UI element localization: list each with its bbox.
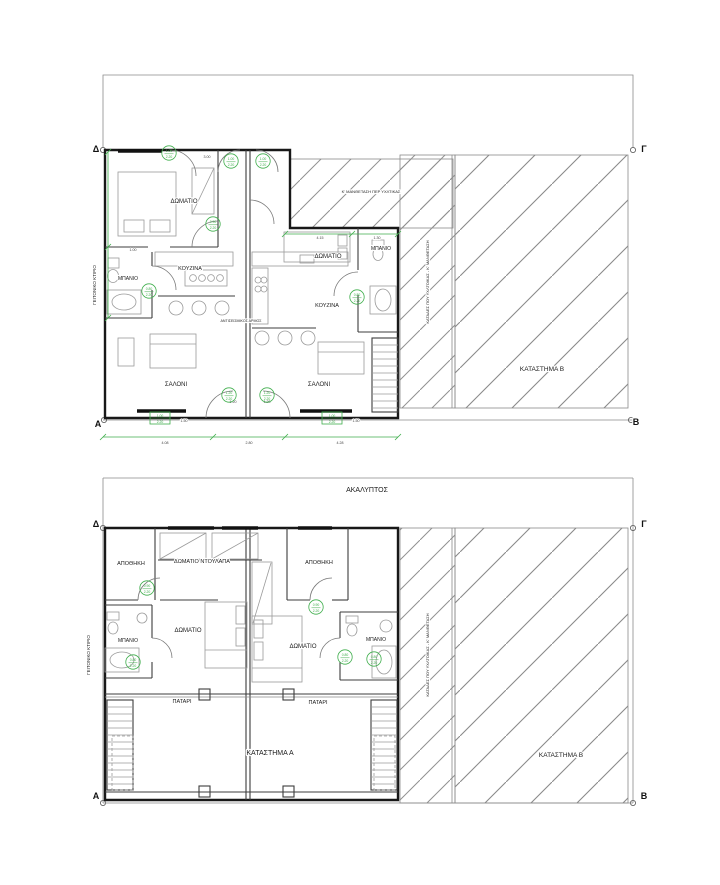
pillow: [150, 220, 170, 232]
marker-width-value: 0.90: [210, 220, 217, 224]
room-label: ΜΠΑΝΙΟ: [371, 246, 391, 252]
bed: [118, 172, 176, 236]
site-boundary-top: [103, 75, 633, 148]
annotation-note: ΓΕΙΤΟΝΙΚΟ ΚΤΙΡΙΟ: [92, 265, 97, 305]
room-label: ΣΑΛΟΝΙ: [308, 382, 331, 388]
wardrobe-diagonal: [192, 168, 214, 214]
room-label: ΔΩΜΑΤΙΟ ΝΤΟΥΛΑΠΑ: [174, 559, 230, 565]
door-swing: [152, 266, 176, 290]
corner-letter: Β: [633, 417, 640, 427]
stair-treads: [371, 707, 397, 784]
marker-width-value: 0.80: [371, 655, 378, 659]
toilet: [108, 270, 119, 283]
marker-height-value: 2.20: [228, 163, 235, 167]
dimension-box-value: 1.00: [329, 414, 336, 418]
marker-width-value: 0.80: [342, 653, 349, 657]
closet-diagonal: [160, 533, 206, 559]
bathtub: [112, 294, 136, 310]
room-label: ΠΑΤΑΡΙ: [172, 699, 192, 705]
corner-letter: Δ: [93, 519, 100, 529]
room-label: ΔΩΜΑΤΙΟ: [174, 628, 201, 634]
toilet-tank: [346, 616, 358, 623]
room-label: ΜΠΑΝΙΟ: [366, 637, 386, 643]
door-swing: [152, 638, 172, 658]
staircase: [371, 700, 397, 790]
marker-width-value: 0.80: [146, 287, 153, 291]
staircase: [107, 700, 133, 790]
door-swing: [218, 150, 240, 172]
bathtub-frame: [370, 286, 396, 314]
dimension-text: 4.28: [337, 441, 344, 445]
corner-letter: Γ: [641, 144, 647, 154]
pillow: [124, 220, 144, 232]
dimension-box-value: 2.20: [157, 420, 164, 424]
marker-height-value: 2.20: [313, 609, 320, 613]
marker-height-value: 2.20: [144, 590, 151, 594]
door-swing: [310, 578, 332, 600]
annotation-note: ΑΚΑΛΥΠΤΟΣ: [346, 487, 388, 494]
dimension-text: 1.30: [374, 236, 381, 240]
marker-height-value: 2.20: [146, 293, 153, 297]
outer-walls: [105, 528, 398, 800]
marker-width-value: 1.00: [260, 157, 267, 161]
pillow: [236, 606, 245, 624]
dimension-text: 1.00: [130, 248, 137, 252]
sofa: [318, 342, 364, 374]
room-label: ΚΑΤΑΣΤΗΜΑ Α: [246, 750, 294, 757]
room-label: ΜΠΑΝΙΟ: [118, 638, 138, 644]
marker-height-value: 2.20: [260, 163, 267, 167]
dimension-text: 2.80: [246, 441, 253, 445]
toilet: [108, 622, 118, 634]
toilet-tank: [107, 612, 119, 620]
pillow: [338, 235, 347, 246]
stool: [278, 331, 292, 345]
toilet: [347, 624, 357, 636]
bed: [205, 602, 247, 668]
stair-treads: [107, 707, 133, 784]
annotation-note: ΚΑΤΑΔΕΣ ΠΟΥ ΥΧΛΤΟΙΚΑΣ - Κ' ΜΑΝΘΕΤΑΣΗ: [425, 240, 430, 323]
corner-letter: Δ: [93, 144, 100, 154]
closet-diagonal: [212, 533, 258, 559]
marker-width-value: 1.00: [228, 157, 235, 161]
dimension-text: 4.08: [162, 441, 169, 445]
marker-height-value: 2.20: [226, 397, 233, 401]
stair-treads: [372, 345, 398, 408]
marker-height-value: 2.20: [354, 299, 361, 303]
marker-width-value: 1.00: [166, 149, 173, 153]
floor-plan-drawing: ΔΓΑΒΔΩΜΑΤΙΟΜΠΑΝΙΟΚΟΥΖΙΝΑΣΑΛΟΝΙΔΩΜΑΤΙΟΜΠΑ…: [0, 0, 720, 885]
side-table: [118, 338, 134, 366]
marker-height-value: 2.20: [342, 659, 349, 663]
annotation-note: Κ' ΜΑΝΘΕΤΑΣΗ ΠΕΡ ΥΧΛΤΙΚΑΣ: [342, 189, 401, 194]
marker-height-value: 2.20: [130, 664, 137, 668]
room-label: ΚΟΥΖΙΝΑ: [178, 266, 202, 272]
corner-letter: Β: [641, 791, 648, 801]
sink: [380, 620, 392, 632]
dimension-text: 1.50: [353, 419, 360, 423]
burner: [199, 275, 206, 282]
survey-node: [630, 147, 635, 152]
dimension-text: 4.15: [317, 236, 324, 240]
corner-letter: Α: [93, 791, 100, 801]
annotation-note: ΚΑΤΑΔΕΣ ΠΟΥ ΥΧΛΤΟΙΚΑΣ - Κ' ΜΑΝΘΕΤΑΣΗ: [425, 613, 430, 696]
corner-letter: Γ: [641, 519, 647, 529]
burner: [217, 275, 224, 282]
burner: [255, 277, 261, 283]
room-label: ΔΩΜΑΤΙΟ: [314, 254, 341, 260]
sink: [137, 613, 147, 623]
room-label: ΑΠΟΘΗΚΗ: [117, 561, 145, 567]
room-label: ΔΩΜΑΤΙΟ: [289, 644, 316, 650]
room-label: ΔΩΜΑΤΙΟ: [170, 199, 197, 205]
pillow: [236, 628, 245, 646]
room-label: ΠΑΤΑΡΙ: [308, 700, 328, 706]
dimension-text: 1.50: [181, 419, 188, 423]
sofa: [150, 334, 196, 368]
shop-b-area: [455, 528, 628, 803]
room-label: ΣΑΛΟΝΙ: [165, 382, 188, 388]
room-label: ΚΑΤΑΣΤΗΜΑ Β: [539, 752, 583, 759]
burner: [261, 277, 267, 283]
floor-plan-page: ΔΓΑΒΔΩΜΑΤΙΟΜΠΑΝΙΟΚΟΥΖΙΝΑΣΑΛΟΝΙΔΩΜΑΤΙΟΜΠΑ…: [0, 0, 720, 885]
marker-height-value: 2.20: [371, 661, 378, 665]
bathtub: [375, 289, 391, 311]
stool: [215, 301, 229, 315]
corner-letter: Α: [95, 419, 102, 429]
pillow: [254, 620, 263, 638]
stool: [169, 301, 183, 315]
door-swing: [250, 200, 274, 224]
burner: [208, 275, 215, 282]
marker-height-value: 2.20: [264, 397, 271, 401]
kitchen-counter: [252, 268, 268, 324]
room-label: ΚΟΥΖΙΝΑ: [315, 303, 339, 309]
marker-width-value: 0.90: [313, 603, 320, 607]
burner: [255, 286, 261, 292]
marker-width-value: 0.80: [354, 293, 361, 297]
annotation-note: ΓΕΙΤΟΝΙΚΟ ΚΤΙΡΙΟ: [86, 635, 91, 675]
dimension-box-value: 2.20: [329, 420, 336, 424]
wardrobe-diagonal: [253, 563, 271, 623]
room-label: ΜΠΑΝΙΟ: [118, 276, 138, 282]
room-label: ΑΠΟΘΗΚΗ: [305, 560, 333, 566]
marker-height-value: 2.20: [166, 155, 173, 159]
stove: [185, 270, 227, 286]
toilet-tank: [108, 258, 119, 268]
marker-height-value: 2.20: [210, 226, 217, 230]
stool: [192, 301, 206, 315]
annotation-note: ΑΝΤΙΣΕΙΣΜΙΚΟΣ ΑΡΜΟΣ: [221, 319, 263, 323]
burner: [190, 275, 197, 282]
stool: [301, 331, 315, 345]
stool: [255, 331, 269, 345]
room-label: ΚΑΤΑΣΤΗΜΑ Β: [520, 366, 564, 373]
marker-width-value: 1.20: [264, 391, 271, 395]
dimension-box-value: 1.00: [157, 414, 164, 418]
marker-width-value: 0.80: [130, 658, 137, 662]
door-swing: [263, 391, 290, 418]
kitchen-counter: [155, 252, 233, 266]
dimension-text: 3.00: [204, 155, 211, 159]
marker-width-value: 1.20: [226, 391, 233, 395]
marker-width-value: 0.90: [144, 584, 151, 588]
pillow: [254, 642, 263, 660]
door-swing: [320, 638, 340, 658]
door-swing: [256, 150, 278, 172]
burner: [261, 286, 267, 292]
door-swing: [206, 391, 233, 418]
